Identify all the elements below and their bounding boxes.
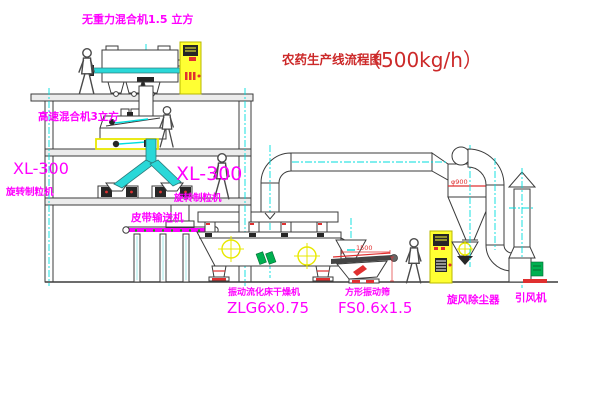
operator-figure-1: [79, 49, 94, 94]
mixer-downpipe: [139, 86, 153, 118]
fan-housing: [509, 258, 531, 282]
control-cabinet-top: [180, 42, 201, 94]
control-cabinet-right: [430, 231, 452, 283]
dryer-model: ZLG6x0.75: [227, 299, 309, 317]
dryer-label: 振动流化床干燥机: [228, 286, 300, 298]
cyclone-outlet: [452, 147, 470, 165]
gravity-mixer-label: 无重力混合机1.5 立方: [81, 12, 193, 26]
fan-label: 引风机: [515, 291, 547, 304]
screen-model: FS0.6x1.5: [338, 299, 412, 317]
screen-label: 方形振动筛: [345, 286, 390, 298]
fluid-bed-dryer: [197, 212, 341, 281]
fan-motor: [531, 262, 543, 276]
diagram-capacity: （500kg/h）: [361, 48, 483, 72]
cyclone-dimension-text: φ900: [451, 178, 468, 186]
granulator-left-label: 旋转制粒机: [5, 186, 54, 198]
granulator-left-model: XL-300: [13, 159, 69, 178]
high-speed-mixer-label: 高速混合机3立方: [38, 110, 119, 123]
mixer-shaft: [88, 68, 188, 73]
belt: [127, 228, 214, 232]
flow-diagram-canvas: 农药生产线流程图 （500kg/h） 无重力混合机1.5 立方 高速混合机3立方…: [0, 0, 600, 403]
granulator-center-label: 旋转制粒机: [173, 192, 222, 204]
fan-base: [523, 279, 547, 283]
operator-figure-4: [406, 239, 421, 283]
process-flow-drawing: 农药生产线流程图 （500kg/h） 无重力混合机1.5 立方 高速混合机3立方…: [0, 0, 600, 403]
cyclone-label: 旋风除尘器: [446, 293, 500, 306]
feed-chute: [146, 139, 156, 163]
granulator-center-model: XL-300: [176, 163, 242, 185]
belt-conveyor-label: 皮带输送机: [130, 211, 184, 224]
screen-dimension-text: 1500: [356, 244, 373, 252]
induced-draft-fan: [509, 258, 547, 283]
chute-branch-left: [114, 160, 154, 188]
